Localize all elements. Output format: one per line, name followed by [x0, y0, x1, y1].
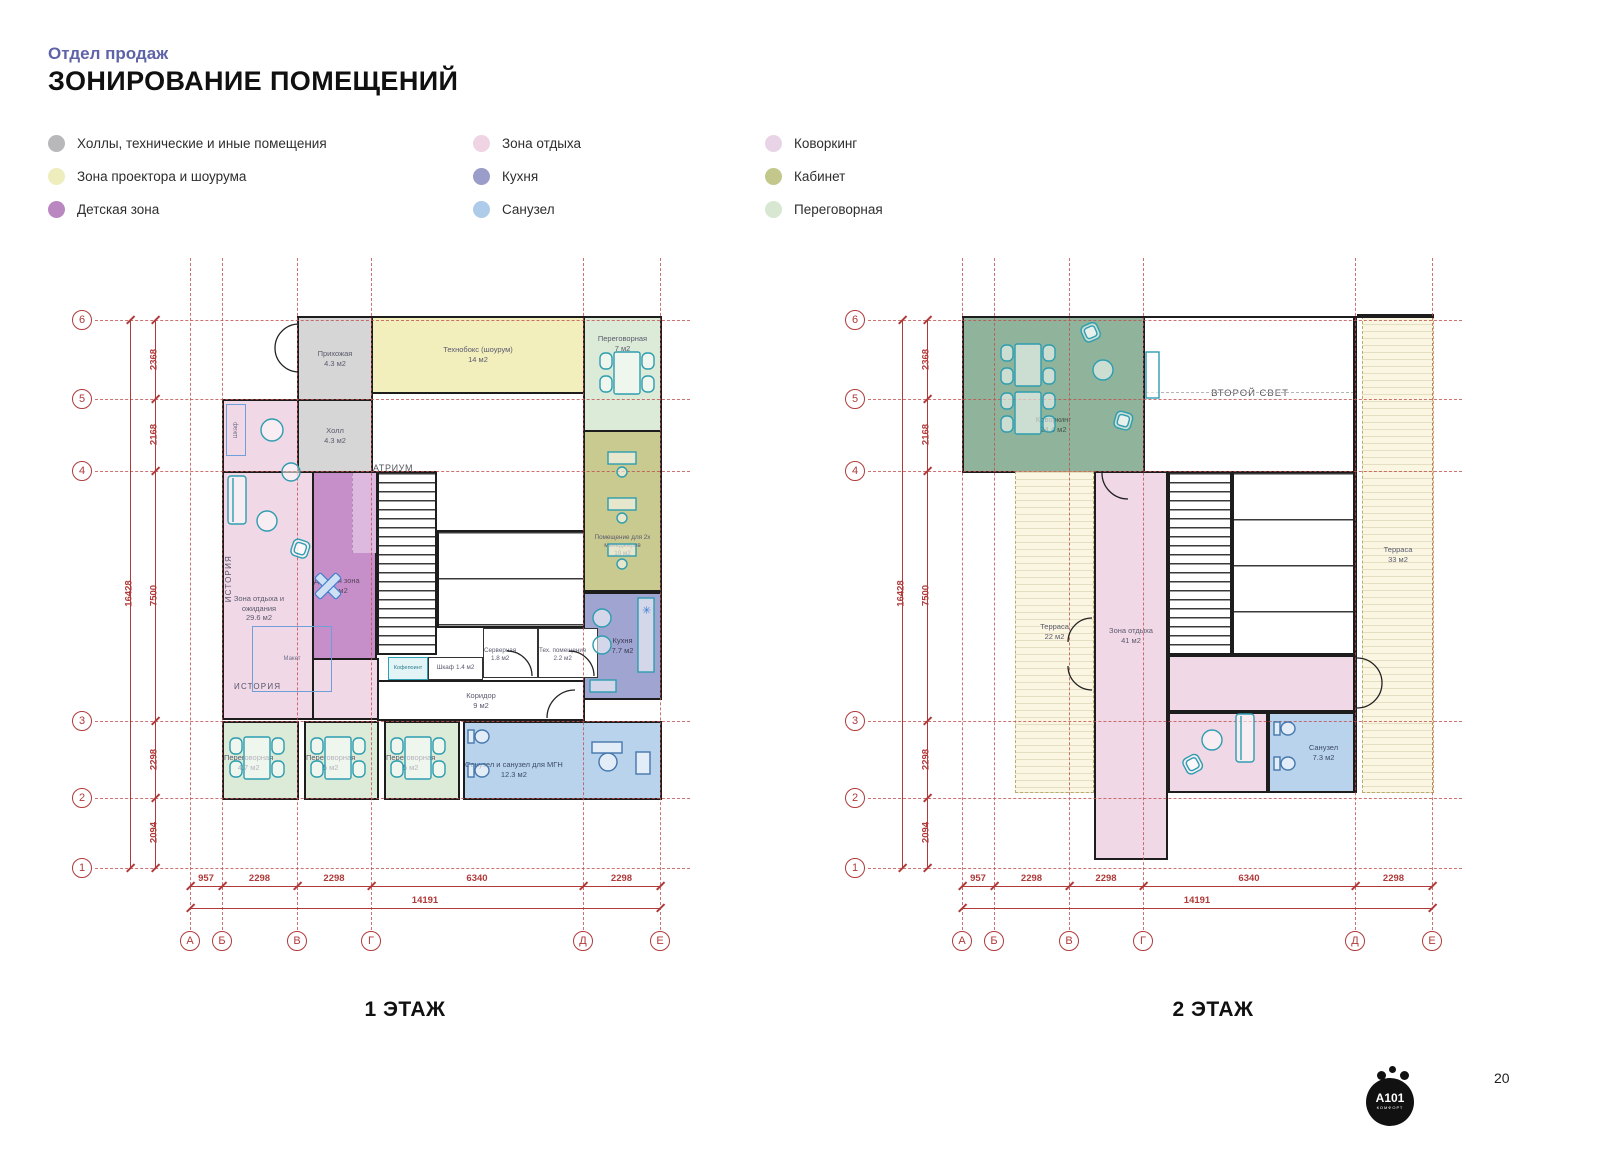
room-peregovornaya-5a: Переговорная5 м2: [304, 721, 379, 800]
dim-label: 2298: [304, 873, 364, 884]
dim-tick: [656, 903, 665, 912]
legend-item-halls: Холлы, технические и иные помещения: [48, 133, 327, 153]
void-divider: [1146, 392, 1354, 393]
axis-bubble-col: Г: [1133, 931, 1153, 951]
dim-tick: [151, 716, 160, 725]
axis-bubble-col: А: [180, 931, 200, 951]
dim-label: 6340: [1219, 873, 1279, 884]
dim-tick: [1139, 881, 1148, 890]
room-sanuzel-2: Санузел7.3 м2: [1268, 712, 1355, 793]
dim-tick: [1065, 881, 1074, 890]
room-shkaf: Шкаф1.4 м2: [428, 657, 483, 680]
grid-line-h: [868, 868, 1462, 869]
room-kofepoint: Кофепоинт: [388, 657, 428, 680]
istoriya-wall-label: ИСТОРИЯ: [224, 555, 233, 602]
dim-tick: [923, 863, 932, 872]
dim-tick: [958, 903, 967, 912]
axis-bubble-col: А: [952, 931, 972, 951]
dim-tick: [186, 903, 195, 912]
stairs-landing-floor2: [1232, 471, 1355, 655]
axis-bubble-col: Е: [650, 931, 670, 951]
dim-label: 957: [948, 873, 1008, 884]
dim-label: 6340: [447, 873, 507, 884]
dim-label: 2368: [921, 329, 932, 389]
dim-label: 2298: [230, 873, 290, 884]
dim-total: 16428: [124, 564, 135, 624]
dim-label: 2298: [149, 729, 160, 789]
dim-tick: [958, 881, 967, 890]
room-peregovornaya-5b: Переговорная5 м2: [384, 721, 460, 800]
room-kovorking: Коворкинг24.4 м2: [962, 316, 1145, 473]
axis-bubble-col: В: [287, 931, 307, 951]
legend-dot-icon: [48, 168, 65, 185]
floor2-caption: 2 ЭТАЖ: [1128, 998, 1298, 1022]
building-wall: [1353, 316, 1357, 793]
dim-tick: [898, 863, 907, 872]
axis-bubble-col: Е: [1422, 931, 1442, 951]
maket-table: Макет: [252, 626, 332, 692]
axis-bubble-col: Б: [984, 931, 1004, 951]
legend-dot-icon: [765, 135, 782, 152]
grid-line-v: [190, 258, 191, 930]
shkaf-closet: Шкаф: [226, 404, 246, 456]
page: Отдел продаж ЗОНИРОВАНИЕ ПОМЕЩЕНИЙ Холлы…: [0, 0, 1600, 1159]
legend-item-rest: Зона отдыха: [473, 133, 581, 153]
legend-item-meeting: Переговорная: [765, 199, 883, 219]
dim-tick: [1428, 881, 1437, 890]
legend-item-wc: Санузел: [473, 199, 555, 219]
room-zona-otdyha-2-arm: [1168, 655, 1355, 712]
dim-total: 14191: [1157, 895, 1237, 906]
legend-item-kids: Детская зона: [48, 199, 159, 219]
axis-bubble-row: 1: [72, 858, 92, 878]
legend-item-coworking: Коворкинг: [765, 133, 857, 153]
dim-tick: [1428, 903, 1437, 912]
logo-bird-icon: [1389, 1066, 1396, 1073]
dim-tick: [923, 716, 932, 725]
axis-bubble-row: 4: [845, 461, 865, 481]
dim-label: 7500: [921, 566, 932, 626]
page-number: 20: [1494, 1070, 1510, 1086]
dim-rail: [130, 320, 131, 868]
room-koridor: Коридор9 м2: [377, 680, 585, 721]
dim-tick: [293, 881, 302, 890]
logo-bird-icon: [1400, 1071, 1409, 1080]
dim-label: 2298: [1076, 873, 1136, 884]
dim-label: 2298: [1002, 873, 1062, 884]
dim-label: 2168: [149, 405, 160, 465]
axis-bubble-row: 5: [72, 389, 92, 409]
dim-tick: [898, 315, 907, 324]
legend-dot-icon: [473, 168, 490, 185]
dim-tick: [923, 793, 932, 802]
axis-bubble-row: 4: [72, 461, 92, 481]
dim-label: 7500: [149, 566, 160, 626]
dim-rail: [902, 320, 903, 868]
dim-label: 2298: [592, 873, 652, 884]
floor1-caption: 1 ЭТАЖ: [320, 998, 490, 1022]
room-sanuzel-mgn: Санузел и санузел для МГН12.3 м2: [463, 721, 662, 800]
dim-tick: [151, 793, 160, 802]
legend-dot-icon: [48, 135, 65, 152]
axis-bubble-col: Г: [361, 931, 381, 951]
dim-tick: [923, 466, 932, 475]
axis-bubble-row: 3: [72, 711, 92, 731]
page-title: ЗОНИРОВАНИЕ ПОМЕЩЕНИЙ: [48, 66, 458, 97]
kids-shelf-strip: [352, 473, 376, 553]
room-zona-otdyha-2: Зона отдыха41 м2: [1094, 471, 1168, 860]
legend-dot-icon: [473, 201, 490, 218]
dim-rail: [962, 886, 1432, 887]
dim-tick: [656, 881, 665, 890]
axis-bubble-col: В: [1059, 931, 1079, 951]
dim-rail: [962, 908, 1432, 909]
dim-rail: [190, 908, 660, 909]
axis-bubble-row: 3: [845, 711, 865, 731]
dim-tick: [151, 394, 160, 403]
room-tehnoboks: Технобокс (шоурум)14 м2: [371, 316, 585, 394]
axis-bubble-row: 5: [845, 389, 865, 409]
legend-item-kitchen: Кухня: [473, 166, 538, 186]
axis-bubble-row: 6: [72, 310, 92, 330]
stairs-floor1: [377, 471, 437, 655]
room-teh-pomeshenie: Тех. помещение2.2 м2: [538, 628, 598, 678]
dim-tick: [126, 315, 135, 324]
stairs-landing-floor1: [437, 530, 585, 628]
room-managery: Помещение для 2х менеджеров10 м2: [583, 430, 662, 592]
legend-item-showroom: Зона проектора и шоурума: [48, 166, 246, 186]
dim-label: 2298: [921, 729, 932, 789]
legend-dot-icon: [765, 168, 782, 185]
dim-tick: [186, 881, 195, 890]
dim-label: 2368: [149, 329, 160, 389]
axis-bubble-row: 1: [845, 858, 865, 878]
dim-total: 16428: [896, 564, 907, 624]
page-subtitle: Отдел продаж: [48, 44, 168, 64]
dim-tick: [218, 881, 227, 890]
room-terrasa-22: Терраса22 м2: [1015, 471, 1094, 793]
legend-dot-icon: [765, 201, 782, 218]
dim-label: 2094: [149, 803, 160, 863]
dim-label: 957: [176, 873, 236, 884]
dim-total: 14191: [385, 895, 465, 906]
dim-rail: [927, 320, 928, 868]
room-vtoroy-svet: ВТОРОЙ СВЕТ: [1143, 316, 1357, 473]
axis-bubble-row: 2: [845, 788, 865, 808]
legend-item-cabinet: Кабинет: [765, 166, 845, 186]
dim-tick: [367, 881, 376, 890]
dim-tick: [151, 315, 160, 324]
room-peregovornaya-47: Переговорная4.7 м2: [222, 721, 299, 800]
room-servernaya: Серверная1.8 м2: [483, 628, 538, 678]
terrace-roof-edge: [1357, 314, 1434, 318]
dim-label: 2298: [1364, 873, 1424, 884]
legend-dot-icon: [473, 135, 490, 152]
room-holl: Холл4.3 м2: [297, 399, 373, 473]
dim-tick: [923, 315, 932, 324]
a101-logo: А101 КОМФОРТ: [1366, 1078, 1414, 1126]
dim-tick: [126, 863, 135, 872]
dim-tick: [1351, 881, 1360, 890]
dim-label: 2168: [921, 405, 932, 465]
dim-rail: [190, 886, 660, 887]
stairs-floor2: [1168, 471, 1232, 655]
room-terrasa-33: Терраса33 м2: [1362, 316, 1434, 793]
axis-bubble-col: Д: [573, 931, 593, 951]
axis-bubble-col: Д: [1345, 931, 1365, 951]
axis-bubble-row: 6: [845, 310, 865, 330]
axis-bubble-col: Б: [212, 931, 232, 951]
dim-tick: [579, 881, 588, 890]
grid-line-h: [95, 868, 690, 869]
room-peregovornaya-7: Переговорная7 м2: [583, 316, 662, 432]
dim-rail: [155, 320, 156, 868]
dim-tick: [151, 863, 160, 872]
axis-bubble-row: 2: [72, 788, 92, 808]
legend-dot-icon: [48, 201, 65, 218]
room-prihozhaya: Прихожая4.3 м2: [297, 316, 373, 401]
dim-tick: [990, 881, 999, 890]
room-lounge-2: [1168, 712, 1268, 793]
dim-label: 2094: [921, 803, 932, 863]
dim-tick: [151, 466, 160, 475]
dim-tick: [923, 394, 932, 403]
